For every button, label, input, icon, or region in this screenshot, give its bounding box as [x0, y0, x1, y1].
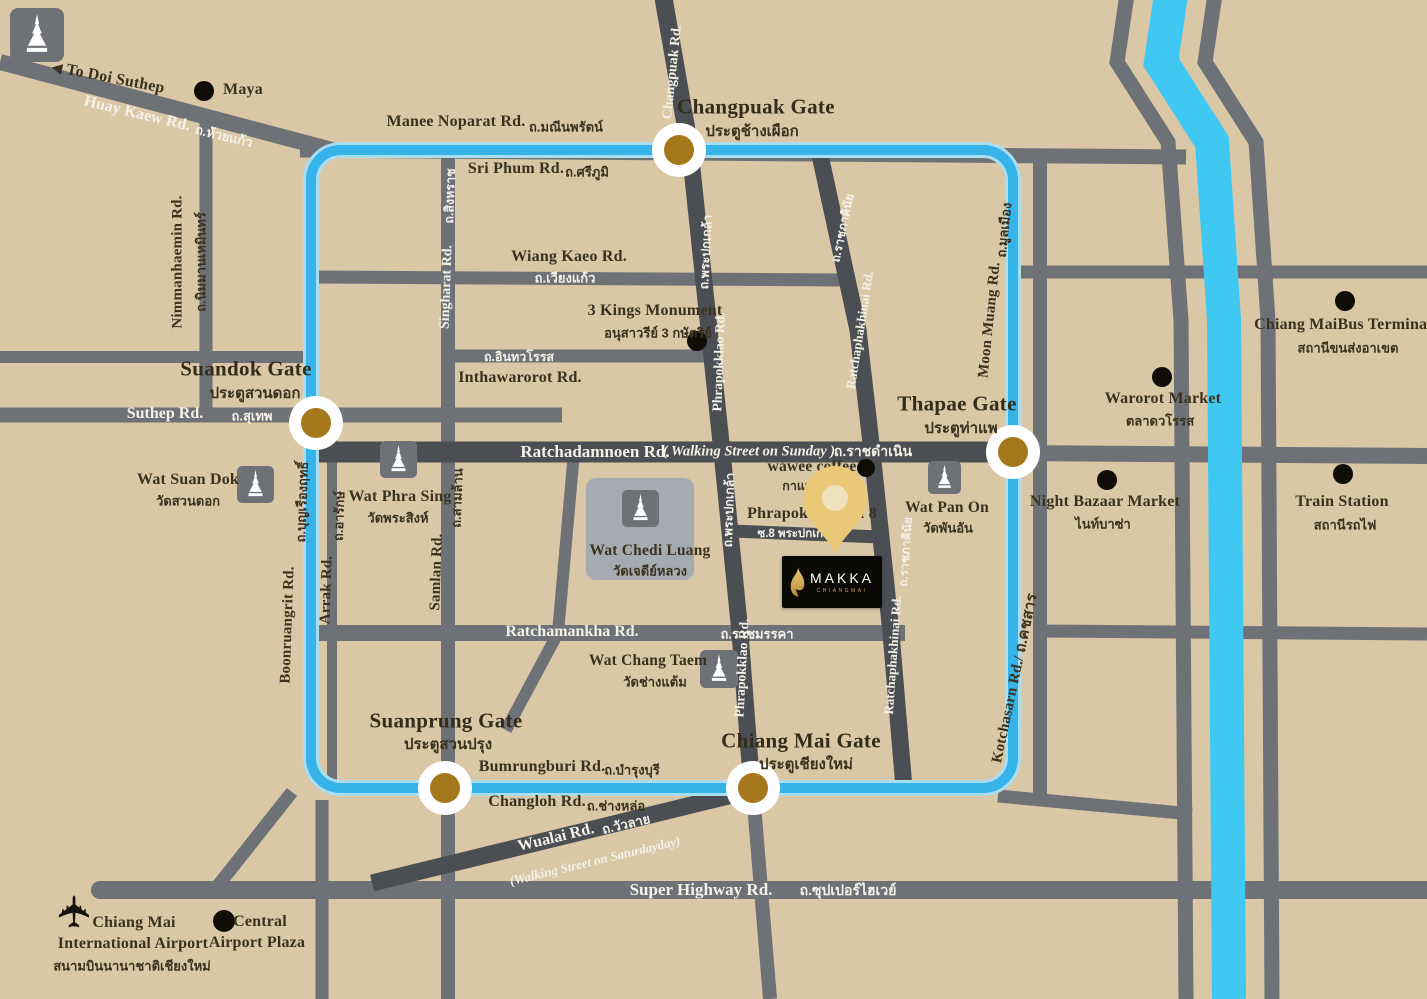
bus-terminal-label-en: Chiang MaiBus Terminal [1254, 316, 1427, 334]
train-station-label-en: Train Station [1295, 493, 1388, 511]
doi-suthep-temple-icon [10, 8, 64, 62]
night-bazaar-label-th: ไนท์บาซ่า [1075, 514, 1131, 535]
three-kings-label-en: 3 Kings Monument [588, 302, 723, 320]
suanprung-gate-marker [418, 761, 472, 815]
suandok-gate-label-en: Suandok Gate [180, 357, 311, 382]
wat-pan-on-icon [928, 461, 961, 494]
maya-label: Maya [223, 81, 263, 99]
inthawarorot-label-en: Inthawarorot Rd. [458, 369, 582, 387]
changpuak-gate-label-th: ประตูช้างเผือก [705, 119, 798, 143]
super-highway-label-th: ถ.ซุปเปอร์ไฮเวย์ [800, 880, 897, 902]
chiang-mai-tourist-map: ◀To Doi Suthep Maya Huay Kaew Rd. ถ.ห้วย… [0, 0, 1427, 999]
suanprung-gate-label-en: Suanprung Gate [370, 709, 523, 734]
sri-phum-label-en: Sri Phum Rd. [468, 160, 564, 178]
wat-pan-on-label-en: Wat Pan On [905, 499, 989, 517]
changpuak-gate-label-en: Changpuak Gate [677, 95, 835, 120]
wiang-kaeo-label-en: Wiang Kaeo Rd. [511, 248, 627, 266]
inthawarorot-label-th: ถ.อินทวโรรส [484, 347, 554, 367]
phrapokklao-north-label-th: ถ.พระปกเกล้า [694, 214, 718, 290]
warorot-market-label-en: Warorot Market [1105, 390, 1221, 408]
wat-chedi-luang-label-en: Wat Chedi Luang [589, 542, 710, 560]
wat-phra-sing-icon [380, 441, 417, 478]
boonruangrit-label-th: ถ.บุญเรืองฤทธิ์ [290, 461, 314, 542]
central-airport-plaza-dot [213, 910, 235, 932]
chiangmai-gate-label-th: ประตูเชียงใหม่ [759, 752, 853, 776]
arrak-label-th: ถ.อารักษ์ [328, 491, 351, 542]
singharat-label-th: ถ.สิงหราช [439, 168, 461, 224]
airport-label-th: สนามบินนานาชาติเชียงใหม่ [53, 956, 211, 977]
train-station-label-th: สถานีรถไฟ [1314, 515, 1377, 536]
nimmanhaemin-label-en: Nimmanhaemin Rd. [170, 195, 187, 328]
changloh-label-en: Changloh Rd. [488, 793, 586, 811]
manee-noparat-label-en: Manee Noparat Rd. [387, 113, 526, 131]
warorot-market-label-th: ตลาดวโรรส [1126, 411, 1194, 432]
wat-chedi-luang-label-th: วัดเจดีย์หลวง [613, 561, 687, 582]
chiangmai-gate-label-en: Chiang Mai Gate [721, 729, 881, 754]
makka-location-pin-icon [800, 464, 870, 563]
changpuak-gate-marker [652, 123, 706, 177]
wat-chedi-luang-icon [622, 490, 659, 527]
wat-chang-taem-label-th: วัดช่างแต้ม [623, 672, 687, 693]
suandok-gate-label-th: ประตูสวนดอก [209, 381, 300, 405]
warorot-market-dot [1152, 367, 1172, 387]
airport-label-line2: International Airport [58, 935, 208, 953]
three-kings-label-th: อนุสาวรีย์ 3 กษัตริย์ [604, 323, 712, 344]
wat-suan-dok-label-en: Wat Suan Dok [137, 471, 239, 489]
bus-terminal-dot [1335, 291, 1355, 311]
sri-phum-label-th: ถ.ศรีภูมิ [565, 162, 609, 183]
arrak-label-en: Arrak Rd. [317, 555, 336, 624]
wat-pan-on-label-th: วัดพันอัน [923, 518, 973, 539]
bumrungburi-label-th: ถ.บำรุงบุรี [604, 760, 660, 781]
airport-label-line1: Chiang Mai [92, 914, 175, 932]
makka-flame-icon [788, 565, 808, 599]
wiang-kaeo-label-th: ถ.เวียงแก้ว [535, 268, 596, 289]
train-station-dot [1333, 464, 1353, 484]
thapae-gate-label-th: ประตูท่าแพ [924, 416, 997, 440]
night-bazaar-dot [1097, 470, 1117, 490]
wat-phra-sing-label-en: Wat Phra Sing [348, 488, 451, 506]
ratchamankha-label-en: Ratchamankha Rd. [505, 623, 638, 641]
suanprung-gate-label-th: ประตูสวนปรุง [404, 732, 492, 756]
suthep-label-th: ถ.สุเทพ [232, 406, 273, 427]
suthep-label-en: Suthep Rd. [127, 405, 203, 423]
nimmanhaemin-label-th: ถ.นิมมานเหมินทร์ [191, 212, 212, 312]
maya-dot [194, 81, 214, 101]
thapae-gate-label-en: Thapae Gate [897, 392, 1016, 417]
makka-brand-name: MAKKA [810, 570, 874, 586]
west-arrow-icon: ◀ [50, 59, 64, 77]
wat-suan-dok-icon [237, 466, 274, 503]
central-plaza-label-line1: Central [233, 913, 287, 931]
wat-phra-sing-label-th: วัดพระสิงห์ [367, 508, 428, 529]
ratchamankha-label-th: ถ.ราชมรรคา [720, 624, 793, 645]
singharat-label-en: Singharat Rd. [438, 245, 457, 330]
manee-noparat-label-th: ถ.มณีนพรัตน์ [529, 117, 603, 138]
phrapokklao-mid-label-th: ถ.พระปกเกล้า [718, 472, 741, 547]
ratchadamnoen-label-en: Ratchadamnoen Rd. [520, 442, 669, 462]
makka-hotel-box: MAKKA CHIANGMAI [782, 556, 882, 608]
makka-brand-subtitle: CHIANGMAI [817, 588, 868, 594]
bus-terminal-label-th: สถานีขนส่งอาเขต [1298, 338, 1399, 359]
wat-chang-taem-label-en: Wat Chang Taem [589, 652, 707, 670]
central-plaza-label-line2: Airport Plaza [209, 934, 305, 952]
samlan-label-th: ถ.สามล้าน [445, 468, 468, 528]
wat-suan-dok-label-th: วัดสวนดอก [156, 491, 220, 512]
bumrungburi-label-en: Bumrungburi Rd. [479, 758, 606, 776]
super-highway-label-en: Super Highway Rd. [630, 880, 773, 900]
samlan-label-en: Samlan Rd. [427, 533, 447, 611]
night-bazaar-label-en: Night Bazaar Market [1030, 493, 1180, 511]
